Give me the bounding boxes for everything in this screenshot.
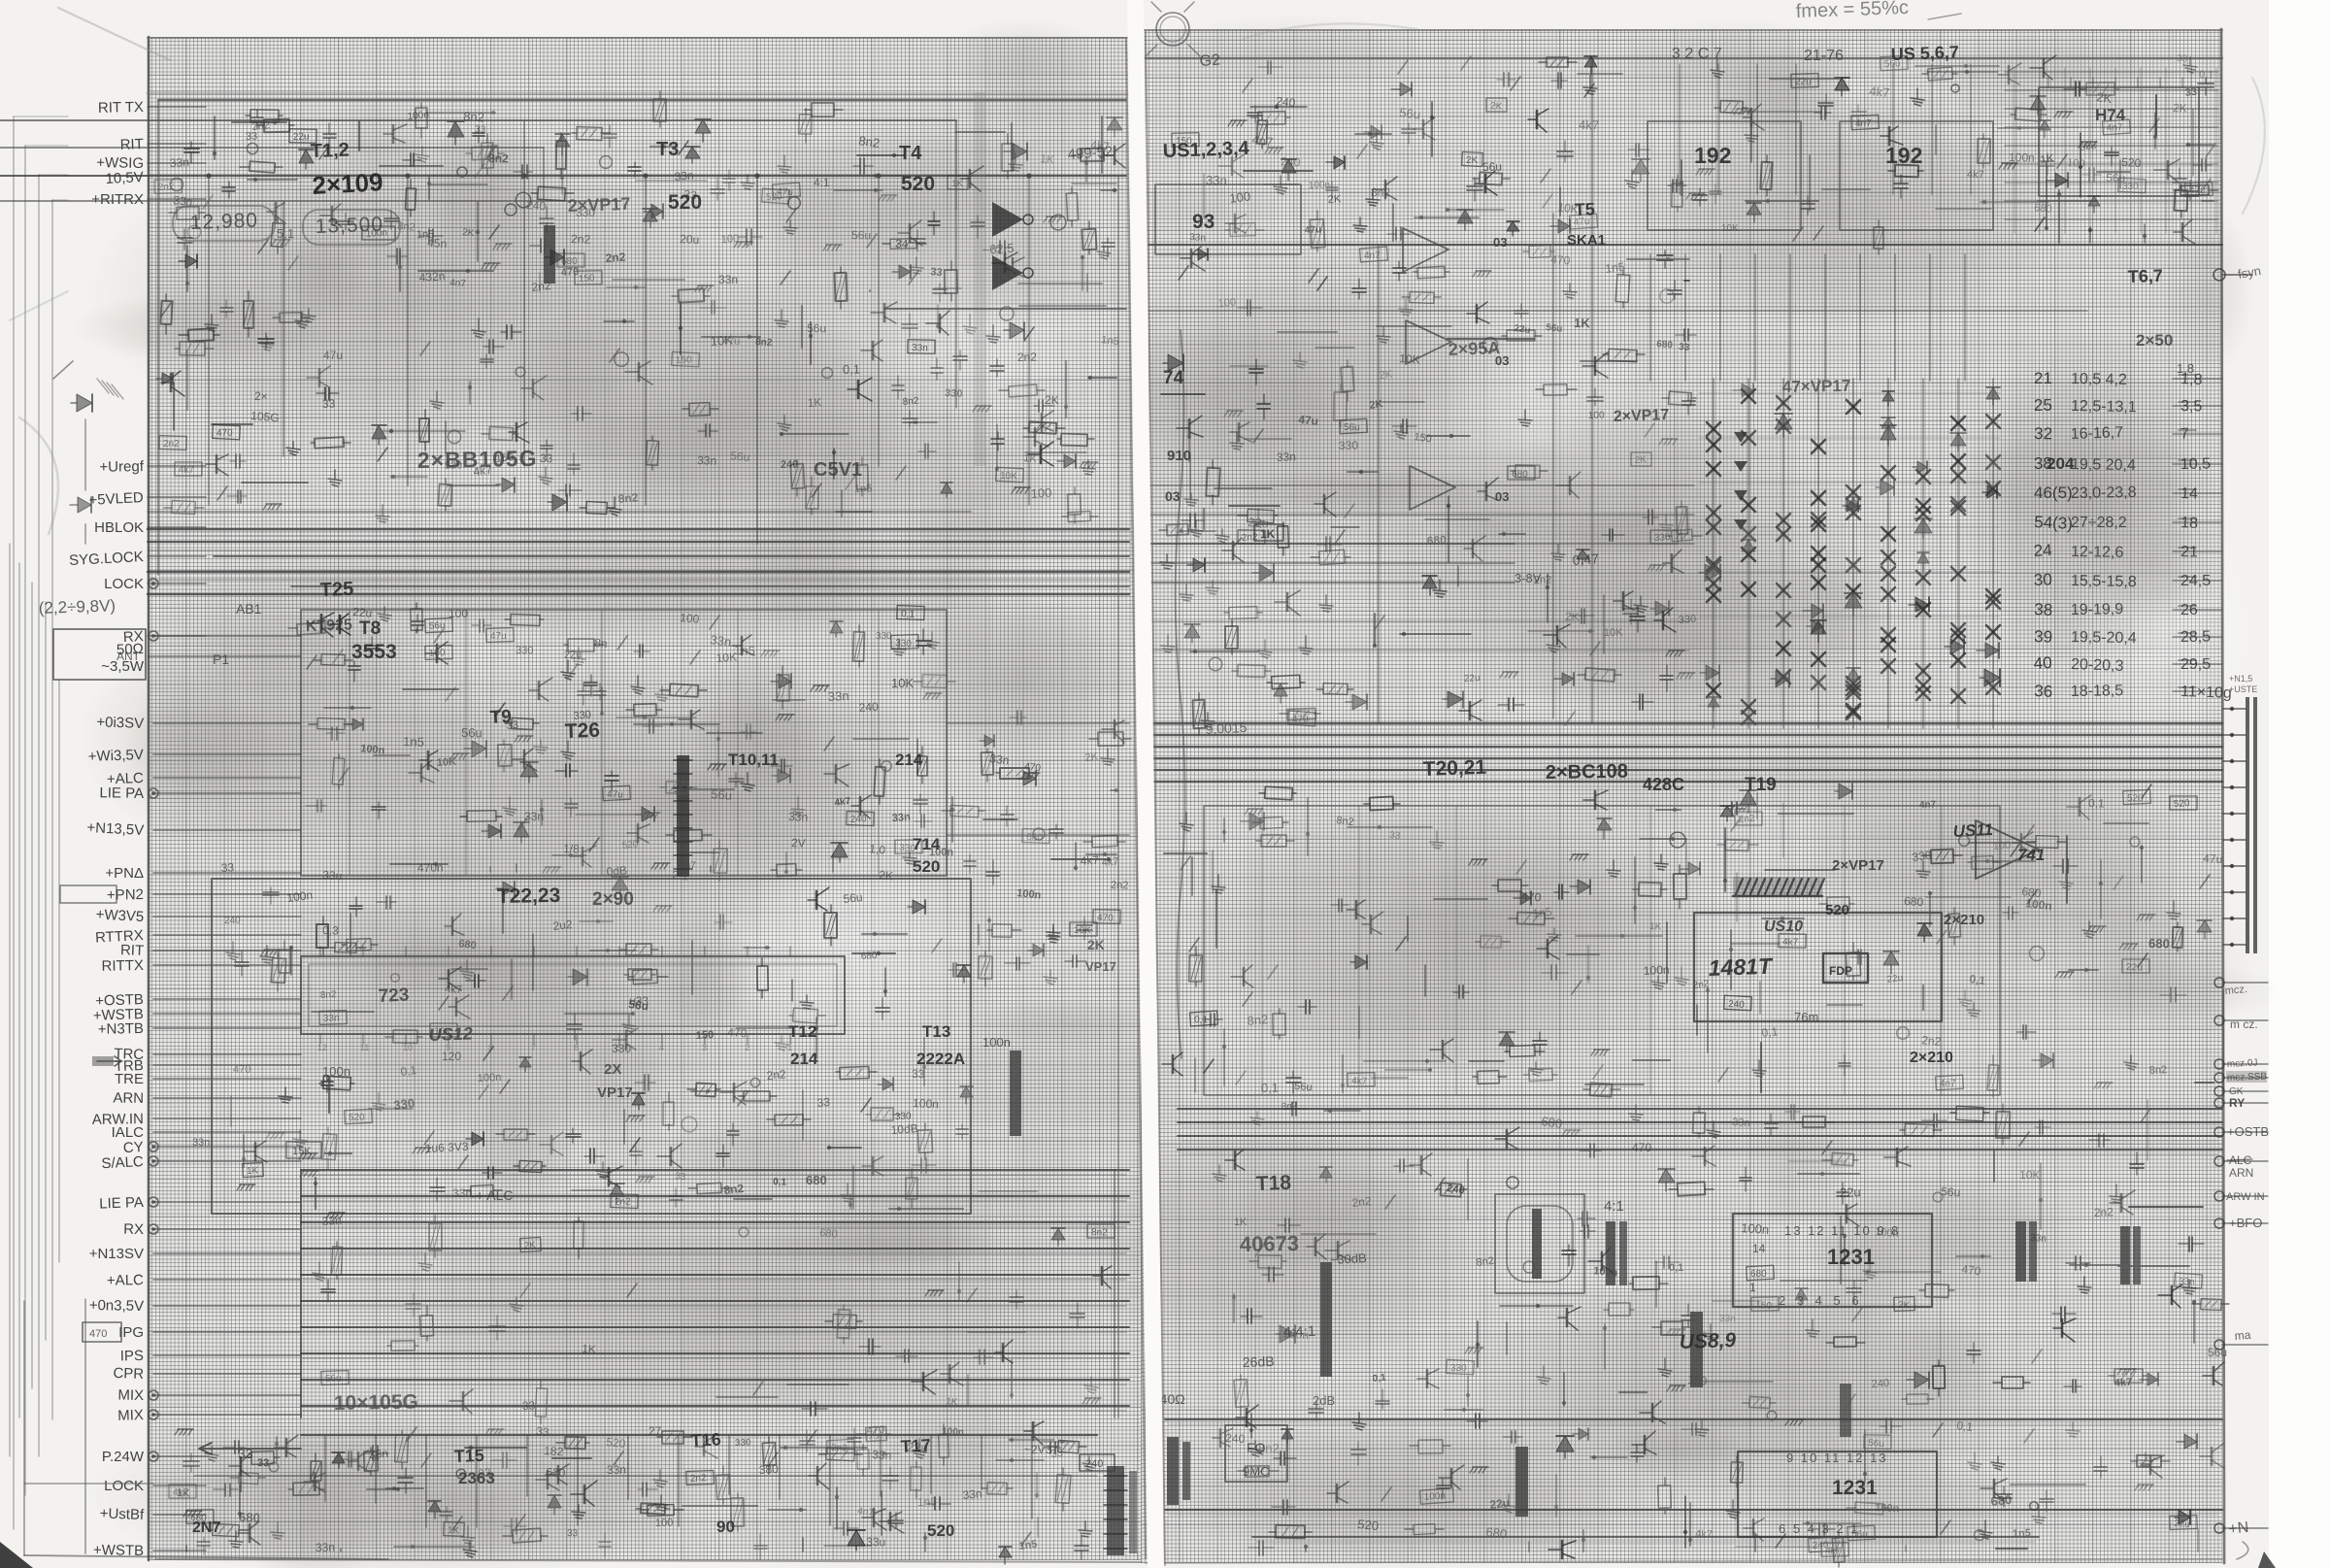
svg-text:680: 680 <box>1026 832 1044 844</box>
svg-text:33: 33 <box>675 1171 687 1183</box>
svg-text:1K: 1K <box>1040 151 1055 166</box>
svg-text:P.24W: P.24W <box>102 1449 145 1465</box>
svg-text:240: 240 <box>1281 154 1301 169</box>
svg-text:8n2: 8n2 <box>320 989 338 1001</box>
svg-text:RIT: RIT <box>119 136 144 153</box>
svg-text:LOCK: LOCK <box>104 1478 144 1494</box>
svg-text:11: 11 <box>360 1043 369 1052</box>
svg-text:33n: 33n <box>2030 1233 2047 1245</box>
svg-text:100: 100 <box>721 233 740 246</box>
svg-text:2n2: 2n2 <box>1351 1194 1373 1210</box>
svg-text:100: 100 <box>655 1518 674 1529</box>
svg-text:680: 680 <box>860 951 878 962</box>
svg-text:330: 330 <box>895 638 913 650</box>
svg-text:10K: 10K <box>1399 351 1420 366</box>
svg-text:150: 150 <box>696 1029 715 1042</box>
svg-text:330: 330 <box>393 1095 416 1113</box>
svg-text:47u: 47u <box>1305 224 1322 236</box>
svg-text:100n: 100n <box>1643 963 1669 978</box>
svg-text:680: 680 <box>819 1227 838 1241</box>
svg-text:470: 470 <box>89 1328 107 1340</box>
svg-text:2n2: 2n2 <box>605 250 626 265</box>
svg-text:680: 680 <box>561 256 578 267</box>
svg-text:+Uregf: +Uregf <box>99 458 145 476</box>
svg-text:0,1: 0,1 <box>901 609 915 620</box>
svg-text:8n2: 8n2 <box>2149 1064 2168 1077</box>
svg-text:8n2: 8n2 <box>1336 815 1355 828</box>
svg-text:33n: 33n <box>452 1186 472 1200</box>
svg-text:33n: 33n <box>323 1013 340 1024</box>
svg-text:2n2: 2n2 <box>690 1473 708 1485</box>
svg-text:520: 520 <box>621 839 639 851</box>
svg-text:0,1: 0,1 <box>2088 796 2105 811</box>
svg-text:150: 150 <box>1687 1373 1708 1388</box>
svg-text:RX: RX <box>123 1221 144 1238</box>
svg-text:1K: 1K <box>177 1487 191 1499</box>
svg-text:12: 12 <box>317 1043 327 1052</box>
svg-text:MIX: MIX <box>117 1387 144 1404</box>
svg-text:1n5: 1n5 <box>1101 334 1120 348</box>
svg-text:100n: 100n <box>407 110 429 122</box>
svg-text:1n5: 1n5 <box>403 734 424 750</box>
svg-text:2K: 2K <box>1490 101 1503 113</box>
svg-text:4: 4 <box>659 1043 664 1052</box>
svg-text:1K: 1K <box>1234 1217 1248 1228</box>
svg-text:520: 520 <box>349 1113 365 1123</box>
svg-text:33: 33 <box>567 1528 579 1539</box>
svg-text:3: 3 <box>702 1043 707 1052</box>
svg-text:33n: 33n <box>710 632 733 650</box>
svg-text:10K: 10K <box>1000 471 1017 482</box>
svg-text:680: 680 <box>1426 533 1447 548</box>
svg-text:470: 470 <box>561 266 580 279</box>
svg-text:RITTX: RITTX <box>101 957 144 975</box>
svg-text:0,1: 0,1 <box>1261 1081 1279 1095</box>
svg-text:2K: 2K <box>1084 751 1099 764</box>
svg-text:2K: 2K <box>1369 398 1384 412</box>
svg-text:+RITRX: +RITRX <box>91 191 144 208</box>
svg-text:4k7: 4k7 <box>1967 169 1984 181</box>
svg-text:330: 330 <box>735 1438 751 1449</box>
svg-text:2n2: 2n2 <box>157 182 175 193</box>
svg-text:680: 680 <box>1750 1269 1767 1280</box>
svg-text:4n7: 4n7 <box>1940 1079 1956 1089</box>
svg-text:0,1: 0,1 <box>1372 1373 1386 1385</box>
svg-text:330: 330 <box>876 631 892 642</box>
svg-text:HBLOK: HBLOK <box>94 519 144 536</box>
svg-text:56u: 56u <box>2106 171 2126 185</box>
svg-text:56u: 56u <box>1344 422 1360 433</box>
svg-text:1n5: 1n5 <box>1018 1538 1038 1552</box>
svg-text:33n: 33n <box>1732 1117 1750 1129</box>
svg-text:0,1: 0,1 <box>400 1063 418 1079</box>
svg-text:+0i3SV: +0i3SV <box>96 714 144 732</box>
svg-text:0,1: 0,1 <box>1969 972 1987 987</box>
svg-text:56u: 56u <box>2208 1346 2227 1359</box>
svg-text:LIE PA: LIE PA <box>99 784 144 802</box>
svg-text:2K: 2K <box>1565 610 1580 623</box>
svg-text:680: 680 <box>1904 894 1924 909</box>
svg-text:S/ALC: S/ALC <box>101 1153 144 1172</box>
svg-text:240: 240 <box>858 700 879 715</box>
svg-text:470: 470 <box>1097 913 1114 924</box>
svg-text:33n: 33n <box>912 343 928 354</box>
svg-text:47u: 47u <box>607 789 623 801</box>
svg-text:0,1: 0,1 <box>1194 1015 1209 1025</box>
svg-text:4k7: 4k7 <box>1080 853 1100 868</box>
svg-text:520: 520 <box>766 191 782 203</box>
svg-text:22u: 22u <box>1840 1184 1861 1200</box>
svg-text:33n: 33n <box>1719 1314 1736 1324</box>
svg-text:330: 330 <box>516 645 534 656</box>
svg-text:2K: 2K <box>1379 369 1393 382</box>
svg-text:2n2: 2n2 <box>1111 880 1129 891</box>
svg-text:520: 520 <box>606 1435 627 1451</box>
svg-text:2n2: 2n2 <box>1921 1033 1943 1049</box>
svg-text:56u: 56u <box>461 725 483 740</box>
svg-text:+N13SV: +N13SV <box>89 1246 144 1262</box>
svg-text:1K: 1K <box>582 1342 597 1356</box>
svg-text:+W3V5: +W3V5 <box>95 906 144 925</box>
svg-text:470: 470 <box>1961 1262 1982 1278</box>
svg-text:47u: 47u <box>2203 851 2223 866</box>
svg-text:2n2: 2n2 <box>1738 814 1755 825</box>
svg-text:56u: 56u <box>1868 1438 1884 1450</box>
svg-text:7: 7 <box>531 1043 536 1052</box>
svg-text:6: 6 <box>574 1043 579 1052</box>
svg-text:33n: 33n <box>1277 450 1297 464</box>
svg-text:56u: 56u <box>325 1373 342 1385</box>
svg-text:100n: 100n <box>478 1072 502 1084</box>
svg-text:LOCK: LOCK <box>104 576 144 592</box>
svg-text:100: 100 <box>1217 296 1236 310</box>
svg-text:2K: 2K <box>523 1240 536 1251</box>
svg-text:150: 150 <box>1414 431 1433 445</box>
svg-text:680: 680 <box>239 1510 260 1525</box>
svg-text:2K: 2K <box>1634 454 1647 466</box>
svg-text:2n2: 2n2 <box>1692 979 1710 991</box>
svg-text:1n5: 1n5 <box>1605 260 1626 276</box>
svg-text:ARN: ARN <box>113 1089 144 1107</box>
svg-text:+5VLED: +5VLED <box>88 489 144 509</box>
svg-text:330: 330 <box>1450 1363 1467 1374</box>
svg-text:2n2: 2n2 <box>1242 532 1259 544</box>
svg-text:240: 240 <box>1447 1183 1466 1196</box>
svg-text:+N3TB: +N3TB <box>98 1020 144 1038</box>
svg-text:680: 680 <box>1656 339 1674 350</box>
svg-text:4k7: 4k7 <box>179 465 195 476</box>
svg-text:56u: 56u <box>1482 160 1502 174</box>
svg-text:56u: 56u <box>851 228 871 242</box>
svg-text:33: 33 <box>1679 342 1690 353</box>
svg-text:33: 33 <box>1389 830 1401 842</box>
svg-text:100n: 100n <box>1016 887 1042 902</box>
svg-text:10K: 10K <box>1721 223 1739 234</box>
svg-text:4k7: 4k7 <box>1090 138 1111 153</box>
svg-text:+ALC: +ALC <box>107 1272 144 1289</box>
svg-text:10K: 10K <box>891 676 914 690</box>
svg-text:680: 680 <box>806 1173 827 1187</box>
svg-text:IPS: IPS <box>120 1348 144 1364</box>
svg-text:680: 680 <box>1541 1114 1564 1131</box>
svg-text:8n2: 8n2 <box>858 133 882 150</box>
svg-text:10K: 10K <box>1074 925 1091 936</box>
svg-text:1K: 1K <box>946 1396 959 1408</box>
svg-text:4k7: 4k7 <box>1869 83 1890 100</box>
svg-text:1K: 1K <box>951 179 964 189</box>
svg-text:2K: 2K <box>1327 193 1342 206</box>
svg-text:8n2: 8n2 <box>902 396 919 408</box>
svg-text:150: 150 <box>676 354 692 366</box>
svg-text:4n7: 4n7 <box>449 278 467 289</box>
svg-text:2: 2 <box>745 1043 749 1052</box>
svg-text:100: 100 <box>1229 188 1251 206</box>
svg-text:22u: 22u <box>293 131 310 143</box>
svg-text:470: 470 <box>233 1064 251 1076</box>
svg-text:+PN2: +PN2 <box>107 886 144 904</box>
svg-text:1K: 1K <box>807 395 821 410</box>
svg-text:47u: 47u <box>1298 413 1319 428</box>
svg-text:8n2: 8n2 <box>617 490 639 506</box>
svg-text:RIT TX: RIT TX <box>98 99 144 117</box>
svg-text:330: 330 <box>1678 614 1696 626</box>
svg-text:4n7: 4n7 <box>1364 250 1381 261</box>
svg-text:240: 240 <box>1728 999 1746 1011</box>
svg-text:0,1: 0,1 <box>773 1177 787 1188</box>
svg-text:470: 470 <box>216 428 233 439</box>
svg-text:240: 240 <box>1276 94 1297 110</box>
svg-text:4n7: 4n7 <box>1919 799 1937 811</box>
svg-text:10K: 10K <box>436 756 456 769</box>
svg-text:56u: 56u <box>1941 1184 1961 1199</box>
svg-text:10: 10 <box>403 1043 413 1052</box>
svg-text:47u: 47u <box>490 631 507 642</box>
svg-text:+PNΔ: +PNΔ <box>105 865 144 882</box>
svg-text:22u: 22u <box>1464 673 1481 684</box>
svg-text:680: 680 <box>2148 936 2170 951</box>
svg-text:8n2: 8n2 <box>723 1182 745 1197</box>
svg-text:1K: 1K <box>1023 452 1038 465</box>
svg-text:33: 33 <box>1050 1448 1063 1460</box>
svg-text:2K: 2K <box>1898 1300 1911 1311</box>
svg-text:56u: 56u <box>1546 322 1563 335</box>
svg-text:0,1: 0,1 <box>2199 69 2214 82</box>
svg-text:33n: 33n <box>1189 232 1206 244</box>
svg-text:1K: 1K <box>1649 921 1662 933</box>
svg-text:ANT: ANT <box>116 650 141 663</box>
svg-text:2K: 2K <box>462 227 476 239</box>
svg-text:100n: 100n <box>2009 150 2035 164</box>
svg-text:56u: 56u <box>843 890 863 906</box>
svg-text:22u: 22u <box>1886 973 1904 985</box>
svg-text:8n2: 8n2 <box>1091 1227 1108 1239</box>
svg-text:4k7: 4k7 <box>1351 1076 1368 1087</box>
svg-text:+Wi3,5V: +Wi3,5V <box>87 747 144 765</box>
svg-text:56u: 56u <box>1399 105 1421 122</box>
svg-text:8n2: 8n2 <box>1476 1255 1495 1269</box>
svg-text:33: 33 <box>2177 53 2188 65</box>
svg-text:100: 100 <box>1992 840 2011 852</box>
svg-text:470: 470 <box>1521 889 1542 904</box>
svg-text:+N13,5V: +N13,5V <box>86 819 145 839</box>
svg-text:240: 240 <box>224 916 241 926</box>
svg-text:470: 470 <box>1632 1141 1651 1154</box>
svg-text:IPG: IPG <box>118 1324 144 1341</box>
svg-text:100: 100 <box>429 648 447 659</box>
svg-text:10,5V: 10,5V <box>105 169 144 187</box>
svg-text:1K: 1K <box>1574 316 1590 330</box>
svg-text:8n2: 8n2 <box>755 337 773 349</box>
svg-text:470: 470 <box>867 1424 885 1437</box>
svg-text:4k7: 4k7 <box>1579 117 1599 132</box>
svg-text:330: 330 <box>895 1111 912 1122</box>
svg-text:150: 150 <box>1755 1300 1773 1312</box>
svg-text:470: 470 <box>1550 252 1571 267</box>
svg-text:33n: 33n <box>989 751 1011 767</box>
svg-text:330: 330 <box>1654 532 1672 544</box>
svg-text:1n5: 1n5 <box>854 483 873 495</box>
svg-text:2K: 2K <box>1045 393 1059 407</box>
svg-text:MIX: MIX <box>117 1407 144 1424</box>
svg-text:4k7: 4k7 <box>445 984 462 996</box>
svg-text:2n2: 2n2 <box>163 439 180 450</box>
svg-text:240: 240 <box>1871 1378 1889 1390</box>
svg-text:150: 150 <box>579 273 596 284</box>
svg-text:0,1: 0,1 <box>1761 1024 1779 1040</box>
svg-text:8n2: 8n2 <box>1247 1012 1269 1028</box>
svg-text:8n2: 8n2 <box>1371 185 1391 199</box>
svg-text:8n2: 8n2 <box>463 109 485 124</box>
svg-text:10K: 10K <box>716 651 737 665</box>
svg-text:330: 330 <box>1339 439 1359 452</box>
svg-text:100n: 100n <box>942 1426 964 1438</box>
svg-text:(2,2÷9,8V): (2,2÷9,8V) <box>38 596 116 617</box>
svg-text:33n: 33n <box>827 688 849 704</box>
svg-text:47u: 47u <box>323 349 343 362</box>
svg-text:1K: 1K <box>247 1166 259 1177</box>
svg-text:2K: 2K <box>1466 155 1479 166</box>
svg-text:100n: 100n <box>1741 1220 1770 1237</box>
svg-text:+0n3,5V: +0n3,5V <box>89 1297 145 1315</box>
svg-text:33n: 33n <box>891 812 911 824</box>
svg-text:100: 100 <box>2067 157 2085 170</box>
svg-text:LIE PA: LIE PA <box>99 1194 144 1213</box>
svg-text:0,1: 0,1 <box>843 362 860 377</box>
svg-text:SYG.LOCK: SYG.LOCK <box>69 549 144 569</box>
svg-text:33: 33 <box>912 1067 925 1081</box>
svg-text:240: 240 <box>850 814 868 825</box>
svg-text:TRE: TRE <box>115 1071 144 1087</box>
svg-text:10K: 10K <box>1604 627 1623 639</box>
svg-text:2n2: 2n2 <box>2094 1205 2114 1219</box>
svg-text:CPR: CPR <box>113 1365 144 1383</box>
svg-text:330: 330 <box>945 387 963 400</box>
svg-text:680: 680 <box>458 938 478 951</box>
svg-text:10K: 10K <box>2019 1168 2041 1182</box>
svg-text:4k7: 4k7 <box>1782 937 1799 949</box>
svg-text:520: 520 <box>2174 798 2191 810</box>
svg-text:0,1: 0,1 <box>1669 1262 1683 1274</box>
svg-text:100: 100 <box>1588 410 1605 421</box>
svg-text:22u: 22u <box>2126 962 2143 974</box>
svg-text:56u: 56u <box>730 449 750 464</box>
svg-text:47u: 47u <box>722 336 740 348</box>
svg-text:100: 100 <box>1030 485 1052 501</box>
svg-text:4n7: 4n7 <box>857 1506 875 1518</box>
svg-text:33n: 33n <box>1206 173 1227 187</box>
svg-text:1K: 1K <box>448 1525 460 1536</box>
svg-text:240: 240 <box>781 459 799 471</box>
svg-text:+UstBf: +UstBf <box>99 1505 145 1523</box>
svg-text:33: 33 <box>930 266 943 279</box>
svg-text:330: 330 <box>1912 849 1933 864</box>
